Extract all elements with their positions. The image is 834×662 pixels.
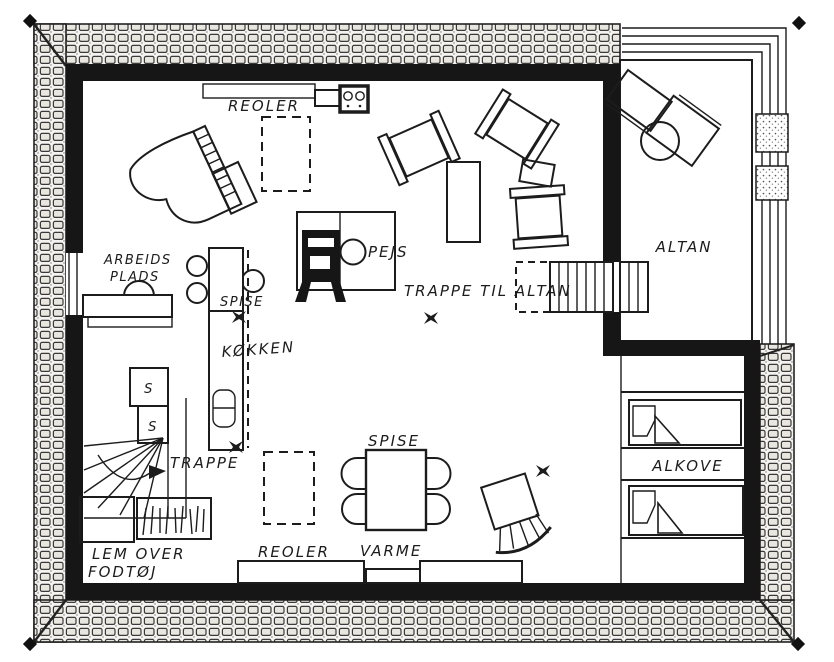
- kitchen-counter: [209, 311, 243, 450]
- wall-west-lower: [66, 318, 83, 600]
- stair-steps-outer: [620, 262, 648, 312]
- railing-post: [756, 114, 788, 152]
- dining-table: [366, 450, 426, 530]
- label-lem-over: LEM OVER: [92, 545, 186, 563]
- label-spise-lower: SPISE: [368, 432, 420, 450]
- label-arbejdsplads-1: ARBEIDS: [103, 253, 172, 268]
- wall-south: [66, 583, 760, 600]
- wall-altan-south: [603, 340, 760, 356]
- label-pejs: PEJS: [368, 243, 408, 261]
- wall-north: [66, 64, 620, 81]
- label-reoler-top: REOLER: [228, 97, 300, 115]
- wall-alkove-east: [744, 356, 760, 600]
- label-reoler-bottom: REOLER: [258, 543, 330, 561]
- label-skab-bottom: S: [148, 420, 158, 435]
- label-fodtoj: FODTØJ: [88, 563, 157, 581]
- label-trappe: TRAPPE: [170, 454, 239, 472]
- label-varme: VARME: [360, 542, 422, 560]
- label-skab-top: S: [144, 382, 154, 397]
- west-window: [66, 249, 83, 319]
- wall-west-upper: [66, 64, 83, 252]
- label-alkove: ALKOVE: [651, 457, 724, 475]
- label-arbejdsplads-2: PLADS: [110, 270, 160, 285]
- label-trappe-til-altan: TRAPPE TIL ALTAN: [404, 282, 572, 300]
- floor-plan-drawing: REOLER: [0, 0, 834, 662]
- label-spise-upper: SPISE: [220, 295, 264, 310]
- railing-post: [756, 166, 788, 200]
- label-altan: ALTAN: [655, 238, 713, 256]
